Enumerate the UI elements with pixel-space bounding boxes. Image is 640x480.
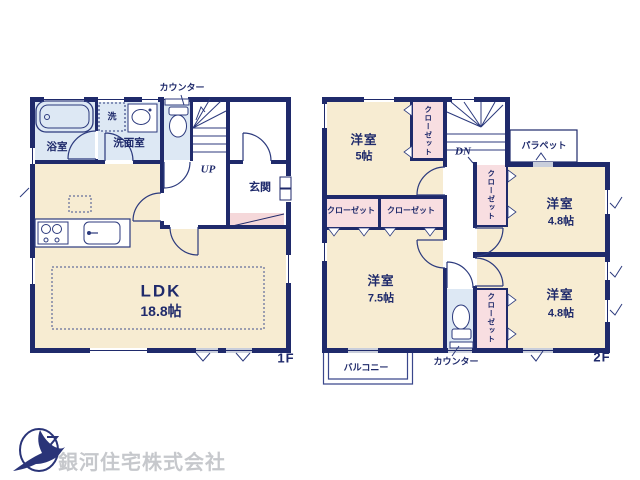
counter-label-2f: カウンター	[433, 358, 478, 367]
stairs-up-label: UP	[201, 165, 216, 176]
room48b-size-label: 4.8帖	[548, 309, 574, 320]
vanity-sink-icon	[128, 104, 157, 132]
closet-label-mid-left: クローゼット	[327, 207, 375, 215]
company-name: 銀河住宅株式会社	[58, 446, 226, 475]
ldk-label: LDK	[141, 283, 182, 300]
room5-size-label: 5帖	[355, 152, 372, 163]
room75-label: 洋室	[367, 275, 394, 288]
washer-space-label: 洗	[107, 113, 116, 122]
floor-plan-drawing	[0, 0, 640, 480]
closet-label-room48b: クローゼット	[487, 293, 495, 344]
room48a-label: 洋室	[546, 198, 573, 211]
closet-label-room5: クローゼット	[424, 106, 432, 157]
kitchen-counter-icon	[35, 219, 130, 247]
closet-label-room48a: クローゼット	[487, 170, 495, 221]
floor1-label: 1F	[277, 352, 294, 365]
closet-label-mid-right: クローゼット	[387, 207, 435, 215]
washroom-label: 洗面室	[113, 138, 145, 149]
room5-label: 洋室	[350, 134, 377, 147]
ldk-size-label: 18.8帖	[140, 304, 181, 318]
room75-size-label: 7.5帖	[368, 294, 394, 305]
entrance-label: 玄関	[249, 183, 271, 194]
stairs-down-label: DN	[455, 147, 471, 158]
counter-label-1f: カウンター	[159, 84, 204, 93]
floor-plan-page: カウンター 浴室 洗 洗面室 UP 玄関 LDK 18.8帖 1F 洋室 5帖 …	[0, 0, 640, 480]
room48b-label: 洋室	[546, 289, 573, 302]
parapet-label: パラペット	[521, 142, 566, 151]
room48a-size-label: 4.8帖	[548, 217, 574, 228]
balcony-label: バルコニー	[344, 364, 389, 373]
bath-room-label: 浴室	[47, 142, 68, 153]
floor2-label: 2F	[593, 351, 610, 364]
